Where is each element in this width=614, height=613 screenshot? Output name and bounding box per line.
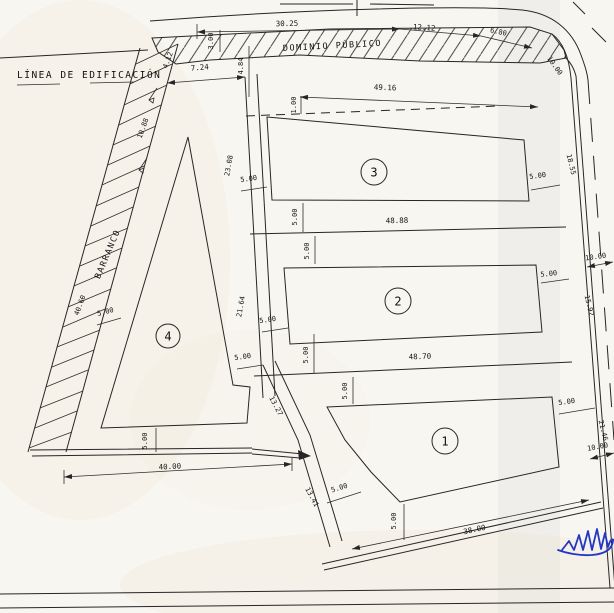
dim-line-road-width-mid [587, 262, 613, 267]
parcel-4-number: 4 [164, 330, 171, 344]
dim-30-25: 30.25 [276, 19, 299, 28]
parcel-3-number: 3 [370, 166, 377, 180]
parcel-3: 3 [267, 117, 529, 201]
dim-15-92: 15.92 [583, 294, 596, 316]
dim-49-16: 49.16 [374, 83, 397, 93]
dim-p1-south: 5.00 [390, 513, 398, 530]
parcel-2-number: 2 [394, 295, 401, 309]
scanned-site-plan: DOMINIO PÚBLICO BARRANCO LÍNEA DE EDIFIC… [0, 0, 614, 613]
parcel-3-outline [267, 117, 529, 201]
dim-gap-p1-n: 5.00 [341, 383, 349, 400]
dim-40-00: 40.00 [158, 461, 182, 471]
dim-21-64: 21.64 [235, 296, 247, 318]
dim-1-00: 1.00 [290, 97, 298, 114]
scan-artifacts [0, 0, 614, 613]
dim-10-00-mid: 10.00 [585, 252, 607, 263]
parcel-1-number: 1 [441, 435, 448, 449]
dim-18-55: 18.55 [565, 153, 578, 175]
dim-p3-west: 5.00 [240, 174, 258, 184]
dim-line-road-width-low [590, 453, 614, 459]
dim-p1-east: 5.00 [558, 397, 576, 407]
dim-p2-west: 5.00 [259, 315, 277, 325]
dim-48-70: 48.70 [408, 352, 431, 362]
road-inner-edge-1 [552, 34, 610, 588]
dim-3-00: 3.00 [207, 33, 215, 50]
dim-12-12: 12.12 [413, 22, 436, 33]
dim-gap-p3-s: 5.00 [291, 209, 299, 226]
linea-edificacion-text: LÍNEA DE EDIFICACIÓN [17, 69, 161, 81]
dim-10-00-low: 10.00 [587, 441, 609, 453]
dim-48-88: 48.88 [386, 216, 409, 225]
dim-gap-p2-s: 5.00 [302, 347, 310, 364]
building-line-dashed [246, 106, 498, 116]
right-road [552, 34, 614, 588]
dim-gap-p2-n: 5.00 [303, 243, 311, 260]
dim-23-08: 23.08 [223, 155, 235, 177]
dim-7-24: 7.24 [190, 62, 209, 73]
site-plan-drawing: DOMINIO PÚBLICO BARRANCO LÍNEA DE EDIFIC… [0, 0, 614, 613]
dim-4-84: 4.84 [237, 58, 245, 75]
dim-p4-south: 5.00 [141, 433, 149, 450]
